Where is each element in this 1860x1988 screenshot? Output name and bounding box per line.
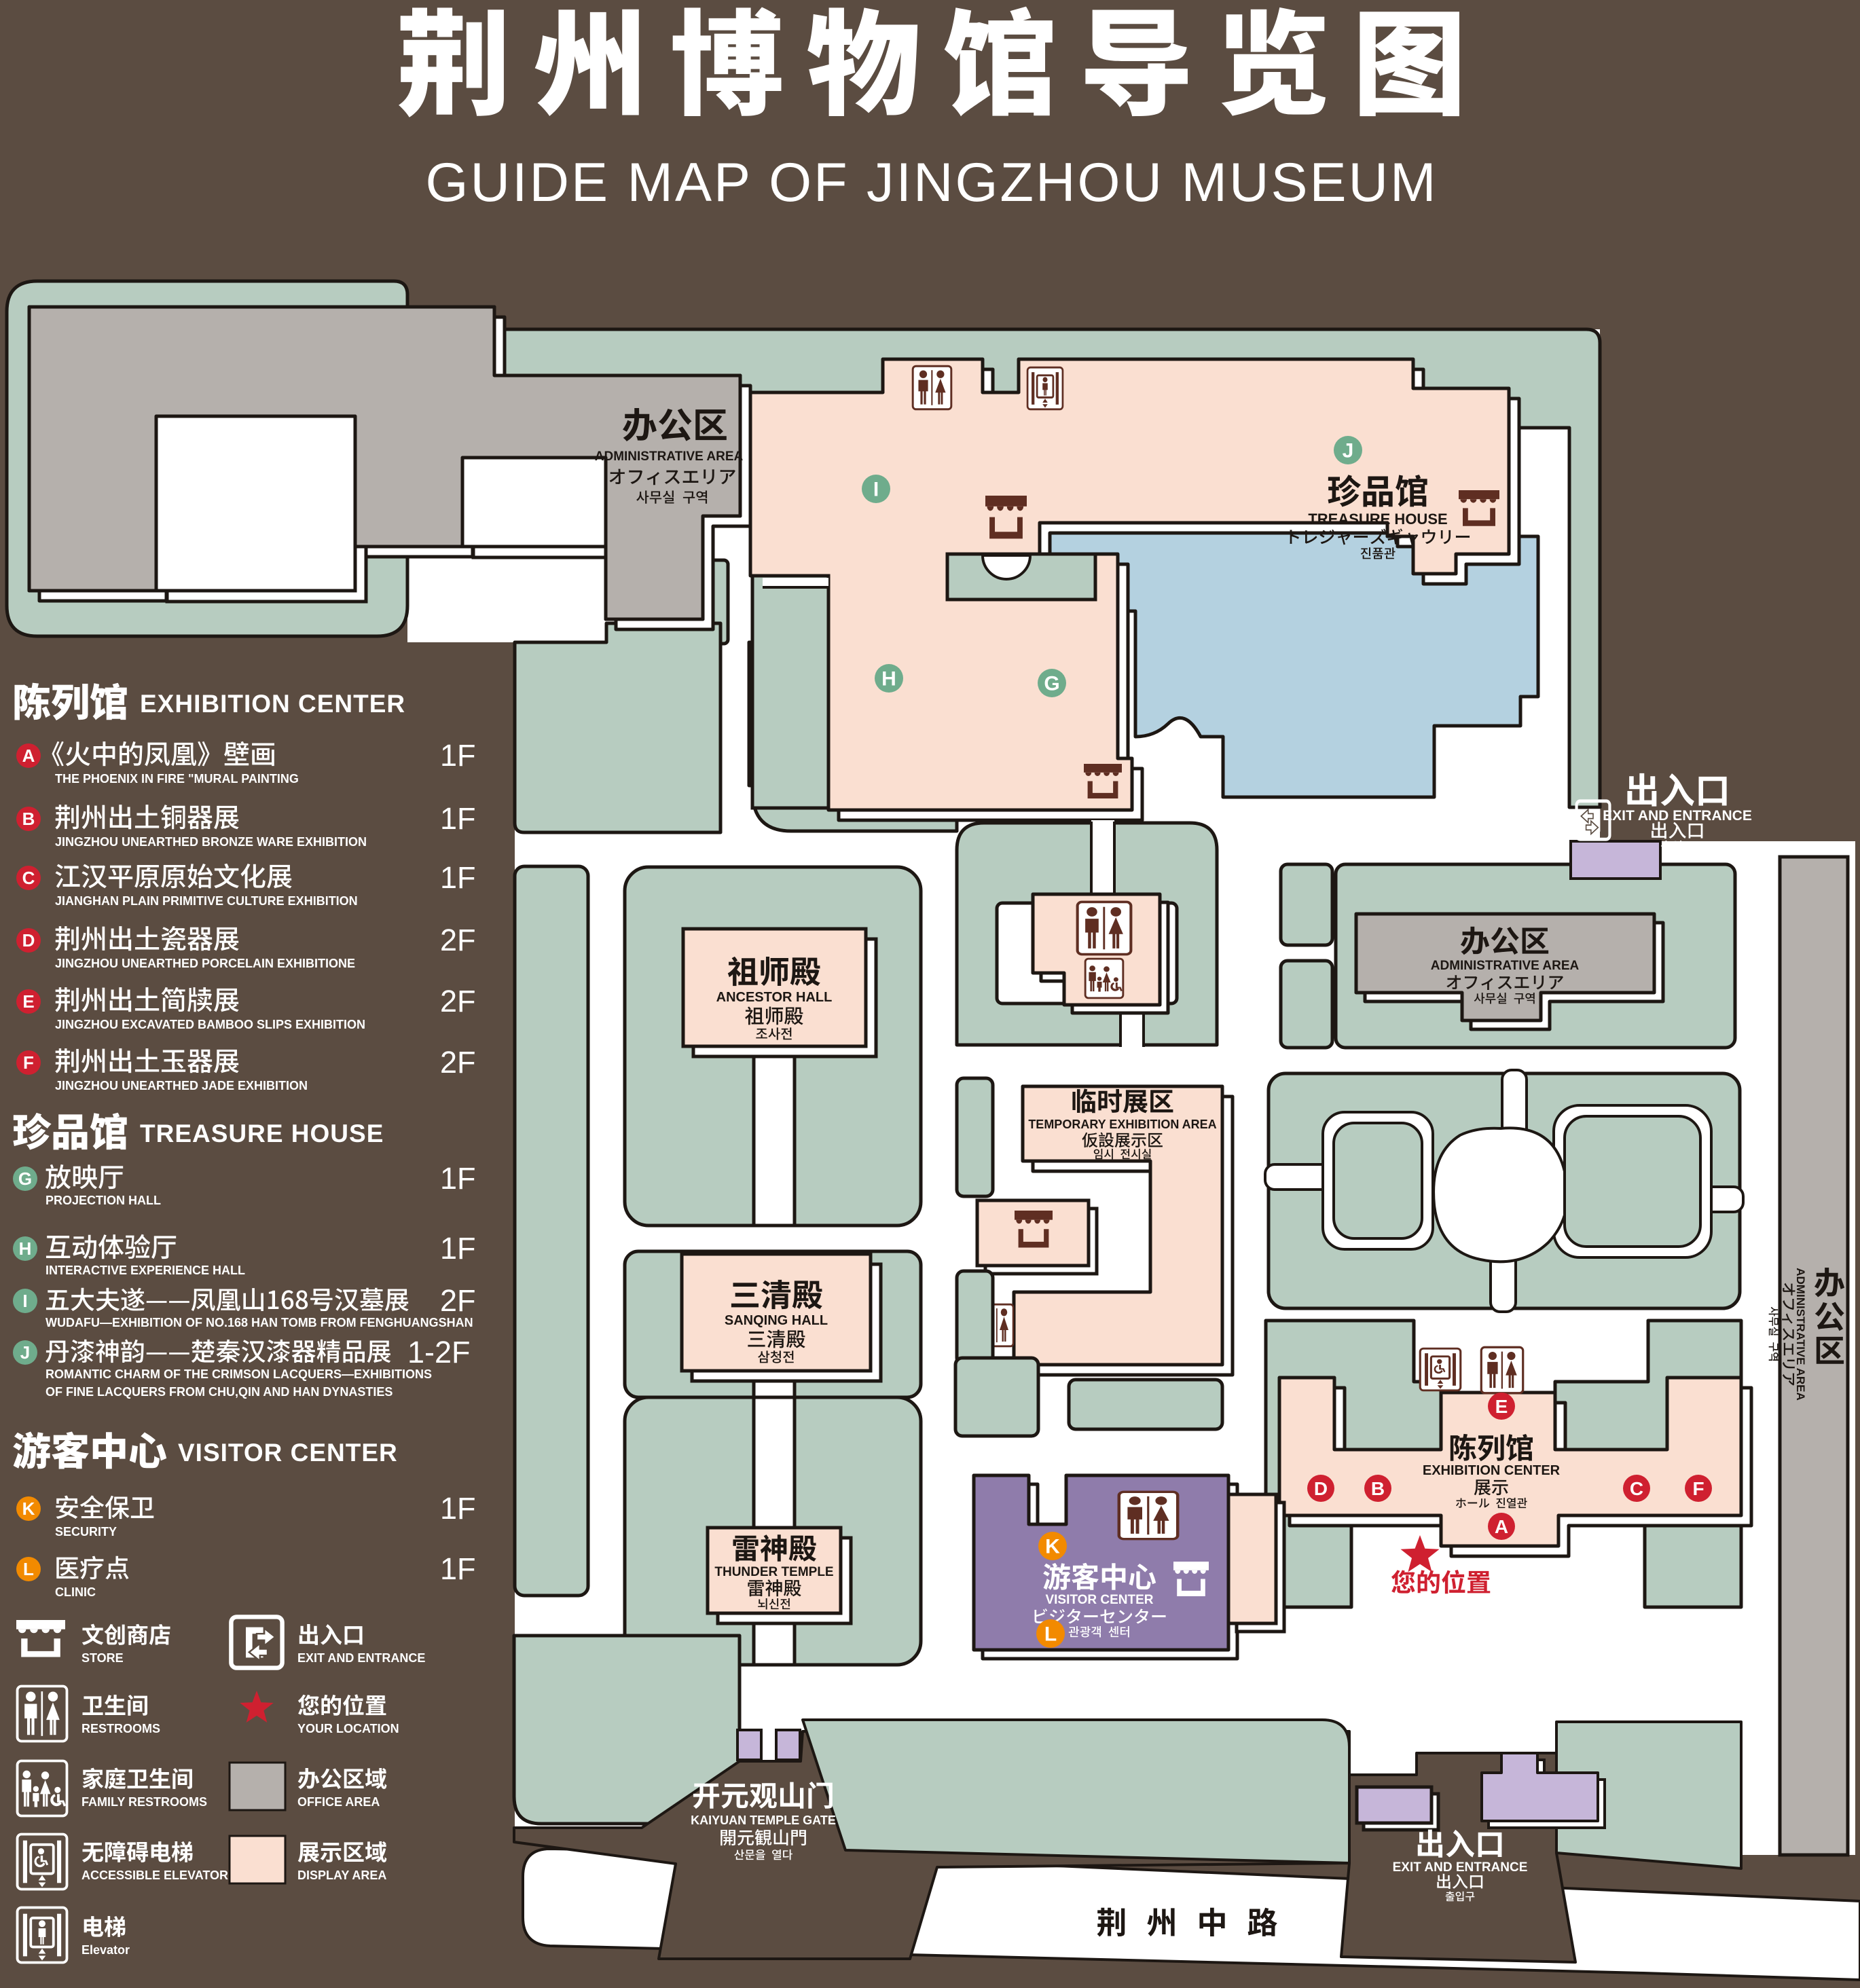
svg-text:EXHIBITION CENTER: EXHIBITION CENTER	[140, 690, 405, 718]
svg-text:SANQING HALL: SANQING HALL	[725, 1313, 828, 1328]
svg-text:I: I	[22, 1291, 27, 1311]
svg-text:PROJECTION HALL: PROJECTION HALL	[45, 1194, 161, 1207]
svg-text:EXIT AND ENTRANCE: EXIT AND ENTRANCE	[1393, 1860, 1528, 1875]
svg-text:INTERACTIVE EXPERIENCE HALL: INTERACTIVE EXPERIENCE HALL	[45, 1264, 245, 1277]
svg-text:JINGZHOU UNEARTHED JADE EXHIBI: JINGZHOU UNEARTHED JADE EXHIBITION	[55, 1079, 308, 1092]
svg-text:ADMINISTRATIVE AREA: ADMINISTRATIVE AREA	[1794, 1268, 1807, 1401]
svg-text:GUIDE MAP OF JINGZHOU MUSEUM: GUIDE MAP OF JINGZHOU MUSEUM	[425, 152, 1438, 213]
svg-text:A: A	[22, 745, 35, 766]
svg-text:J: J	[20, 1342, 30, 1363]
svg-text:FAMILY RESTROOMS: FAMILY RESTROOMS	[81, 1795, 207, 1809]
svg-text:L: L	[23, 1559, 34, 1579]
svg-text:ADMINISTRATIVE AREA: ADMINISTRATIVE AREA	[595, 449, 744, 464]
svg-text:ACCESSIBLE ELEVATOR: ACCESSIBLE ELEVATOR	[81, 1869, 228, 1882]
svg-text:C: C	[22, 868, 35, 888]
svg-text:F: F	[23, 1052, 34, 1073]
svg-text:YOUR LOCATION: YOUR LOCATION	[297, 1722, 399, 1735]
svg-text:THUNDER TEMPLE: THUNDER TEMPLE	[714, 1565, 833, 1579]
svg-text:K: K	[22, 1498, 35, 1519]
svg-text:F: F	[1692, 1478, 1704, 1499]
svg-text:2F: 2F	[440, 1045, 476, 1080]
svg-text:TREASURE HOUSE: TREASURE HOUSE	[1308, 511, 1447, 528]
svg-text:Elevator: Elevator	[81, 1943, 130, 1957]
svg-text:SECURITY: SECURITY	[55, 1525, 117, 1539]
svg-text:WUDAFU—EXHIBITION OF NO.168 HA: WUDAFU—EXHIBITION OF NO.168 HAN TOMB FRO…	[45, 1316, 473, 1329]
svg-text:D: D	[1314, 1478, 1328, 1499]
svg-text:1F: 1F	[440, 860, 476, 895]
svg-text:DISPLAY AREA: DISPLAY AREA	[297, 1869, 386, 1882]
svg-text:E: E	[22, 991, 34, 1012]
svg-text:C: C	[1630, 1478, 1643, 1499]
svg-text:1F: 1F	[440, 1231, 476, 1266]
svg-text:1F: 1F	[440, 738, 476, 773]
svg-text:L: L	[1044, 1623, 1057, 1646]
svg-text:STORE: STORE	[81, 1651, 124, 1665]
svg-text:H: H	[881, 668, 896, 691]
svg-text:JINGZHOU UNEARTHED PORCELAIN E: JINGZHOU UNEARTHED PORCELAIN EXHIBITIONE	[55, 957, 355, 970]
svg-text:1F: 1F	[440, 1161, 476, 1196]
svg-text:1-2F: 1-2F	[407, 1335, 471, 1369]
svg-text:OFFICE AREA: OFFICE AREA	[297, 1795, 380, 1809]
svg-text:H: H	[19, 1238, 32, 1259]
svg-text:RESTROOMS: RESTROOMS	[81, 1722, 160, 1735]
svg-text:A: A	[1495, 1516, 1508, 1537]
svg-text:B: B	[22, 809, 35, 829]
svg-text:G: G	[1044, 673, 1059, 695]
svg-text:G: G	[18, 1168, 32, 1189]
svg-text:I: I	[873, 479, 879, 501]
svg-text:THE PHOENIX IN FIRE "MURAL PAI: THE PHOENIX IN FIRE "MURAL PAINTING	[55, 772, 299, 786]
svg-text:ANCESTOR HALL: ANCESTOR HALL	[716, 990, 833, 1005]
svg-text:1F: 1F	[440, 801, 476, 836]
svg-text:K: K	[1045, 1536, 1060, 1558]
svg-text:KAIYUAN TEMPLE GATE: KAIYUAN TEMPLE GATE	[691, 1814, 836, 1827]
svg-text:ROMANTIC CHARM OF THE CRIMSON: ROMANTIC CHARM OF THE CRIMSON LACQUERS—E…	[45, 1367, 432, 1381]
svg-text:CLINIC: CLINIC	[55, 1585, 96, 1599]
svg-text:2F: 2F	[440, 1283, 476, 1318]
svg-text:D: D	[22, 930, 35, 951]
svg-text:EXIT AND ENTRANCE: EXIT AND ENTRANCE	[297, 1651, 425, 1665]
svg-text:OF FINE LACQUERS FROM CHU,QIN: OF FINE LACQUERS FROM CHU,QIN AND HAN DY…	[45, 1385, 393, 1399]
svg-text:EXHIBITION CENTER: EXHIBITION CENTER	[1423, 1463, 1561, 1478]
svg-text:2F: 2F	[440, 923, 476, 957]
svg-text:J: J	[1343, 440, 1354, 462]
svg-text:B: B	[1371, 1478, 1385, 1499]
svg-text:JIANGHAN PLAIN PRIMITIVE CULTU: JIANGHAN PLAIN PRIMITIVE CULTURE EXHIBIT…	[55, 894, 358, 908]
svg-text:VISITOR CENTER: VISITOR CENTER	[178, 1439, 398, 1467]
svg-text:E: E	[1495, 1396, 1508, 1417]
svg-text:1F: 1F	[440, 1551, 476, 1586]
svg-text:TREASURE HOUSE: TREASURE HOUSE	[140, 1120, 384, 1147]
svg-text:EXIT AND ENTRANCE: EXIT AND ENTRANCE	[1603, 808, 1752, 824]
svg-text:TEMPORARY EXHIBITION AREA: TEMPORARY EXHIBITION AREA	[1028, 1118, 1216, 1131]
svg-text:2F: 2F	[440, 984, 476, 1018]
svg-text:1F: 1F	[440, 1491, 476, 1526]
svg-text:JINGZHOU EXCAVATED BAMBOO SLIP: JINGZHOU EXCAVATED BAMBOO SLIPS EXHIBITI…	[55, 1018, 365, 1031]
svg-text:ADMINISTRATIVE AREA: ADMINISTRATIVE AREA	[1431, 959, 1580, 973]
svg-text:JINGZHOU UNEARTHED BRONZE WARE: JINGZHOU UNEARTHED BRONZE WARE EXHIBITIO…	[55, 835, 367, 849]
svg-text:VISITOR CENTER: VISITOR CENTER	[1045, 1593, 1153, 1607]
